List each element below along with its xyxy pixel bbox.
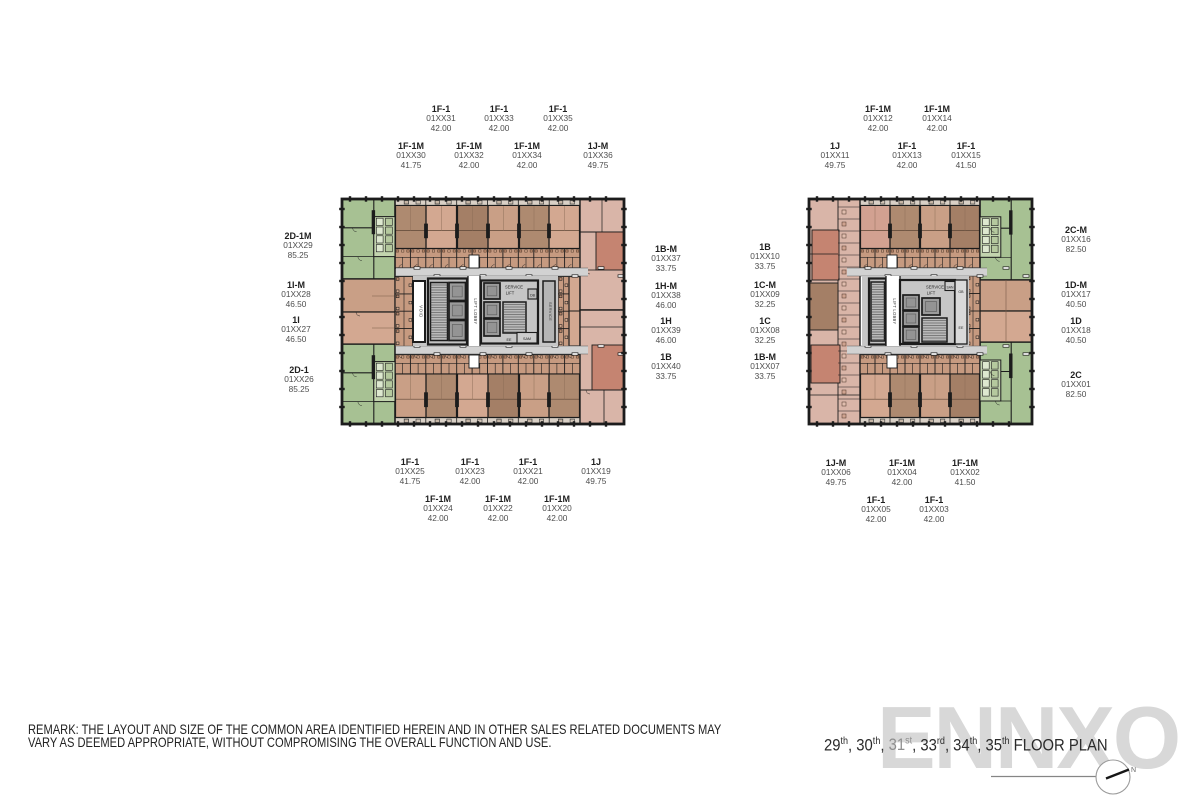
svg-text:EE: EE xyxy=(959,326,964,330)
svg-text:SERVICE: SERVICE xyxy=(926,285,944,290)
svg-text:VOID: VOID xyxy=(418,305,423,318)
svg-text:SAN: SAN xyxy=(947,286,955,290)
svg-text:GB: GB xyxy=(958,290,964,294)
svg-text:SERVICE: SERVICE xyxy=(505,285,523,290)
svg-text:DB: DB xyxy=(530,294,536,298)
svg-text:SAM: SAM xyxy=(523,337,531,341)
svg-text:LIFT LOBBY: LIFT LOBBY xyxy=(473,298,478,324)
svg-text:SERVICE: SERVICE xyxy=(548,302,553,321)
svg-text:LIFT LOBBY: LIFT LOBBY xyxy=(892,298,897,324)
svg-text:EE: EE xyxy=(507,338,512,342)
svg-text:N: N xyxy=(1131,767,1136,774)
svg-text:LIFT: LIFT xyxy=(506,291,515,296)
svg-text:LIFT: LIFT xyxy=(927,291,936,296)
